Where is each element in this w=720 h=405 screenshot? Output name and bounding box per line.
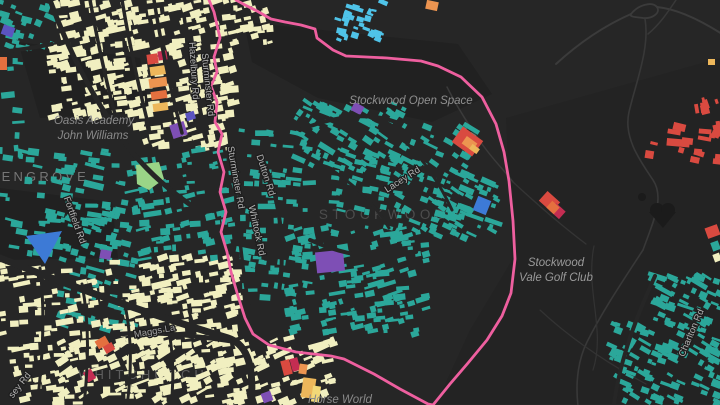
building (293, 182, 301, 187)
building (169, 254, 179, 262)
building (336, 201, 344, 207)
building (199, 276, 203, 283)
building (298, 363, 307, 374)
building (177, 163, 183, 168)
building (244, 181, 253, 186)
building (268, 200, 275, 203)
building (125, 68, 130, 71)
building (160, 228, 170, 235)
building (350, 270, 357, 277)
building (329, 302, 336, 309)
building (38, 181, 46, 185)
building (85, 204, 97, 208)
building (174, 235, 182, 242)
building (240, 215, 246, 221)
building (26, 178, 32, 184)
building (26, 157, 35, 163)
building (37, 192, 45, 198)
building (122, 293, 130, 297)
building (54, 353, 64, 357)
building (142, 64, 148, 71)
building (25, 364, 33, 367)
building (281, 180, 291, 185)
building (278, 197, 283, 201)
building (51, 288, 58, 294)
building (243, 233, 251, 237)
building (301, 139, 307, 143)
building (253, 172, 260, 179)
building (61, 217, 66, 222)
building (88, 304, 94, 308)
map-svg[interactable]: HENGROVESTOCKWOODWHITCHURCH Stockwood Op… (0, 0, 720, 405)
building (209, 306, 214, 309)
building (201, 349, 210, 353)
building (156, 241, 164, 244)
building (15, 132, 20, 139)
building (84, 30, 94, 37)
building (182, 303, 188, 309)
building (51, 176, 57, 181)
building (215, 220, 220, 225)
building (27, 148, 39, 156)
building (254, 180, 259, 186)
building (191, 300, 202, 307)
building (134, 39, 142, 46)
building (365, 225, 369, 229)
building (165, 197, 170, 203)
building (154, 247, 158, 253)
building (421, 242, 430, 248)
building (186, 103, 196, 110)
building (254, 26, 262, 32)
building (51, 104, 61, 112)
building (217, 383, 224, 387)
building (48, 345, 53, 351)
building (190, 221, 201, 227)
building (24, 353, 30, 358)
building (176, 82, 182, 87)
building (10, 359, 17, 364)
building (139, 13, 146, 17)
building (258, 204, 277, 210)
building (383, 330, 387, 334)
building (65, 245, 71, 252)
building (302, 252, 313, 258)
building (332, 191, 337, 196)
building (292, 250, 300, 255)
building (263, 39, 267, 45)
building (247, 154, 252, 157)
building (99, 258, 104, 262)
building (210, 299, 217, 305)
building (139, 220, 149, 227)
building (52, 302, 61, 305)
building (19, 319, 28, 324)
building (13, 58, 18, 64)
building (115, 41, 123, 48)
building (708, 59, 715, 65)
building (19, 153, 24, 159)
building (8, 347, 19, 351)
poi-label-oasis-academy-line2: John Williams (57, 130, 129, 142)
building (187, 181, 195, 184)
building (27, 250, 33, 257)
pond (638, 193, 646, 201)
poi-label-oasis-academy-line1: Oasis Academy (54, 115, 135, 127)
building-purple-large (315, 250, 345, 274)
building (303, 208, 308, 212)
building (5, 197, 9, 201)
building (61, 268, 73, 273)
building (303, 180, 316, 185)
building (112, 163, 120, 167)
building (699, 129, 712, 135)
building (131, 6, 139, 13)
building (99, 249, 111, 260)
building (255, 130, 268, 136)
building (19, 296, 25, 303)
building (288, 224, 294, 229)
building (38, 221, 49, 224)
building (99, 286, 104, 293)
building (49, 69, 56, 74)
map-canvas[interactable]: HENGROVESTOCKWOODWHITCHURCH Stockwood Op… (0, 0, 720, 405)
building (129, 285, 136, 289)
building (378, 196, 384, 201)
building (54, 152, 65, 159)
building (209, 163, 216, 168)
building (301, 263, 308, 269)
building (293, 203, 298, 207)
building (80, 267, 87, 275)
building (192, 308, 201, 313)
building (182, 342, 192, 349)
building (225, 109, 234, 117)
building (78, 316, 84, 320)
building (57, 290, 65, 297)
building (216, 323, 222, 329)
building (167, 298, 173, 304)
building (304, 243, 310, 248)
building (7, 66, 14, 71)
building (377, 308, 382, 313)
building (232, 324, 238, 332)
building (172, 244, 176, 251)
building (393, 293, 406, 301)
building (259, 294, 270, 301)
building (367, 312, 377, 319)
building (1, 318, 6, 321)
poi-label-stockwood-open-space: Stockwood Open Space (349, 95, 472, 107)
building (245, 27, 249, 30)
building (187, 162, 192, 165)
building (402, 240, 411, 246)
building (109, 260, 120, 265)
building (163, 245, 171, 250)
building (61, 77, 67, 83)
building (62, 177, 70, 184)
building (306, 290, 315, 295)
building (153, 199, 164, 206)
building (139, 362, 145, 370)
building (102, 201, 111, 209)
poi-label-golf-line1: Stockwood (528, 257, 585, 269)
building (408, 246, 413, 250)
building (247, 288, 258, 292)
building (137, 371, 144, 375)
building (141, 279, 150, 287)
building (172, 38, 181, 45)
building (272, 268, 280, 273)
building (132, 206, 139, 212)
building (146, 53, 158, 64)
building (159, 274, 164, 279)
building (397, 215, 401, 218)
building (251, 139, 260, 145)
building (65, 293, 70, 297)
building (172, 300, 178, 303)
building (151, 264, 155, 270)
building (319, 275, 324, 280)
building (29, 355, 34, 361)
building (351, 277, 361, 284)
poi-label-golf-line2: Vale Golf Club (519, 272, 593, 284)
building (12, 108, 17, 111)
building (645, 150, 655, 159)
building (250, 268, 255, 272)
building (186, 234, 190, 239)
building (0, 57, 7, 70)
poi-label-horse-world: Horse World (308, 394, 373, 405)
building (112, 323, 125, 330)
building (113, 281, 118, 284)
building (52, 401, 64, 405)
building (220, 277, 231, 282)
building (233, 5, 238, 10)
building (302, 315, 309, 320)
building (227, 15, 236, 20)
building (231, 310, 238, 315)
building (51, 328, 57, 332)
building (173, 286, 182, 293)
building (10, 320, 19, 327)
building (0, 147, 3, 154)
building (223, 158, 227, 161)
building (224, 234, 233, 239)
building (19, 305, 29, 312)
building (69, 330, 80, 336)
